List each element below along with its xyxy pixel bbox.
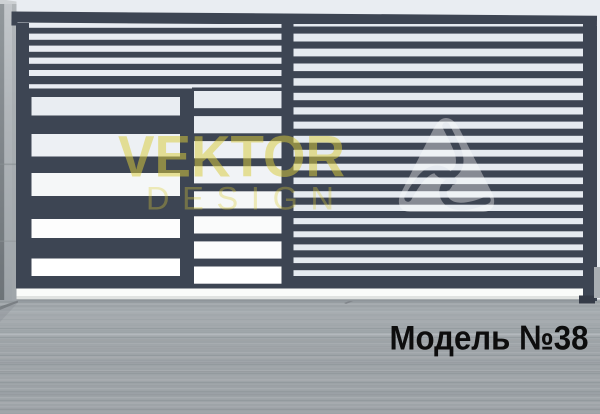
svg-text:Модель №38: Модель №38: [390, 320, 589, 358]
